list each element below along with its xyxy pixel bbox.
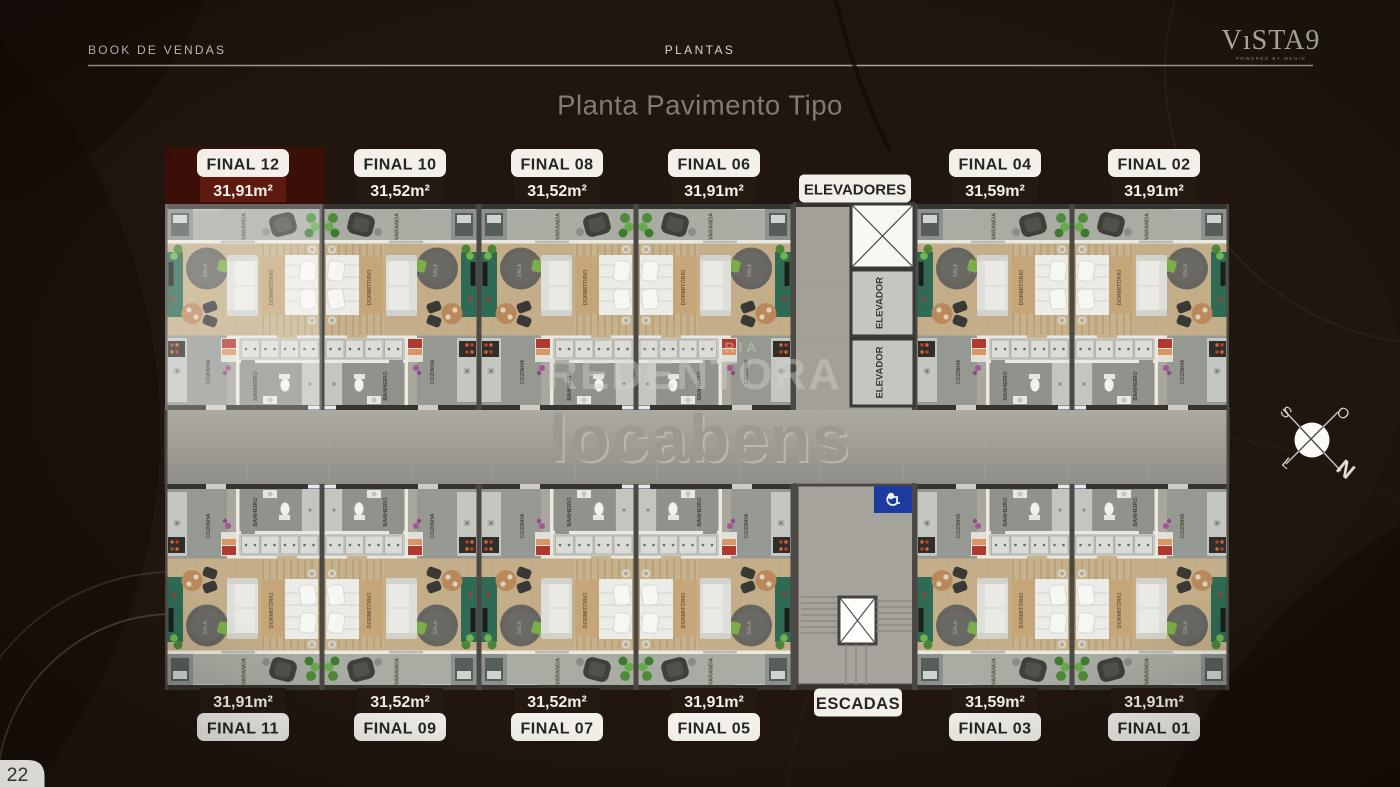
- svg-text:22: 22: [7, 764, 29, 786]
